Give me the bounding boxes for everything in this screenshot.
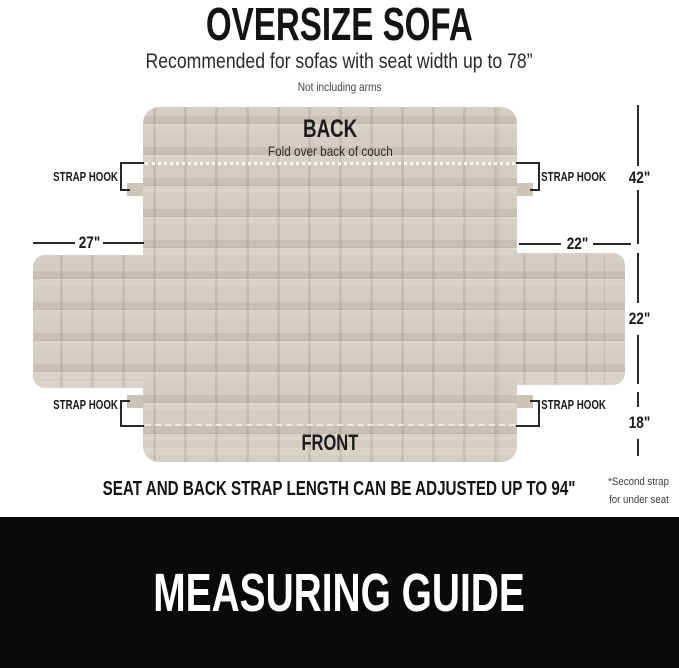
left-arm-flap [33,255,145,388]
arms-note-row: Not including arms [0,78,679,96]
page-subtitle: Recommended for sofas with seat width up… [146,48,533,74]
fold-caption: Fold over back of couch [268,143,393,159]
front-label-row: FRONT [143,430,517,455]
back-label-row: BACK [143,115,517,143]
measurement-front-drop: 18" [609,414,669,433]
header: OVERSIZE SOFA [0,0,679,48]
footer-banner: MEASURING GUIDE [0,517,679,668]
adjust-note-row: SEAT AND BACK STRAP LENGTH CAN BE ADJUST… [0,478,679,500]
strap-hook-label-bottom-right: STRAP HOOK [529,396,619,414]
sofa-cover-body: BACK Fold over back of couch FRONT [143,107,517,462]
strap-hook-label-top-right: STRAP HOOK [529,168,619,186]
fold-caption-row: Fold over back of couch [143,143,517,161]
strap-hook-label-top-left: STRAP HOOK [41,168,131,186]
front-seam-line [145,424,515,426]
front-label: FRONT [302,430,359,455]
arms-note: Not including arms [298,81,382,95]
measurement-right-arm-width: 22" [547,235,607,254]
measuring-guide-infographic: OVERSIZE SOFA Recommended for sofas with… [0,0,679,668]
measuring-guide-title: MEASURING GUIDE [154,565,526,621]
second-strap-note-line2: for under seat [609,494,669,507]
measurement-left-arm-width: 27" [59,234,119,253]
page-title: OVERSIZE SOFA [206,0,473,48]
measurement-back-height: 42" [609,169,669,188]
measurement-seat-depth: 22" [609,310,669,329]
second-strap-note-line1: *Second strap [609,476,670,489]
fold-dotted-line [145,162,515,165]
subtitle-row: Recommended for sofas with seat width up… [0,48,679,74]
back-label: BACK [303,115,357,143]
second-strap-note: *Second strap for under seat [601,472,677,508]
strap-hook-label-bottom-left: STRAP HOOK [41,396,131,414]
adjust-note: SEAT AND BACK STRAP LENGTH CAN BE ADJUST… [103,478,576,500]
